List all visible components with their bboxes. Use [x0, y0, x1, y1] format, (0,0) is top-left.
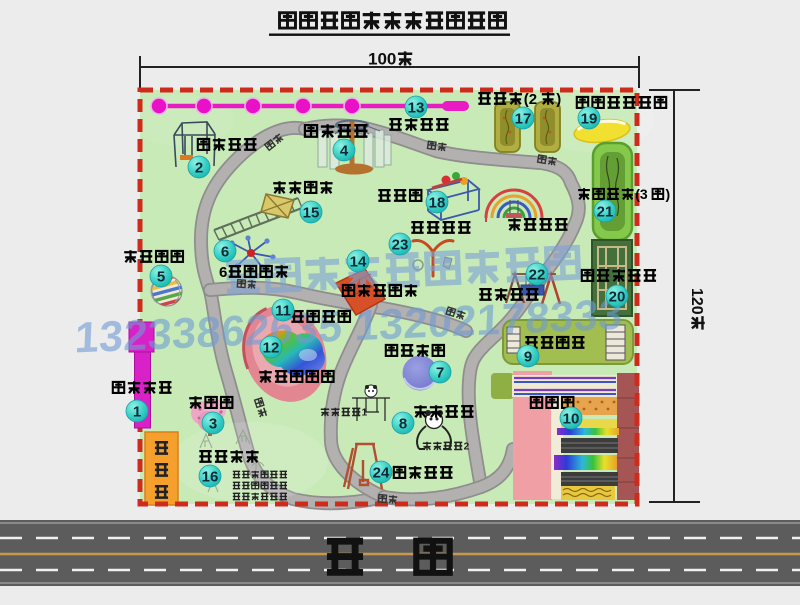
svg-text:7: 7 [436, 364, 444, 381]
svg-text:24: 24 [373, 464, 390, 481]
svg-text:2: 2 [195, 159, 203, 176]
svg-text:3: 3 [209, 415, 217, 432]
svg-text:8: 8 [399, 415, 407, 432]
svg-text:): ) [556, 91, 561, 108]
svg-text:14: 14 [350, 253, 367, 270]
svg-text:6: 6 [221, 243, 229, 260]
svg-text:15: 15 [303, 204, 320, 221]
svg-text:22: 22 [529, 266, 546, 283]
svg-text:): ) [666, 186, 671, 202]
svg-text:(3: (3 [635, 186, 648, 202]
svg-text:10: 10 [563, 410, 580, 427]
svg-text:13: 13 [408, 99, 425, 116]
svg-text:1: 1 [362, 408, 368, 419]
svg-text:18: 18 [429, 194, 446, 211]
svg-text:12: 12 [263, 339, 280, 356]
svg-text:16: 16 [202, 468, 219, 485]
svg-text:9: 9 [524, 348, 532, 365]
svg-text:21: 21 [597, 203, 614, 220]
svg-text:5: 5 [157, 268, 165, 285]
svg-text:19: 19 [581, 110, 598, 127]
svg-text:120: 120 [688, 288, 705, 315]
svg-text:20: 20 [609, 288, 626, 305]
svg-text:17: 17 [515, 110, 532, 127]
svg-text:11: 11 [275, 302, 291, 319]
svg-text:(2: (2 [524, 91, 537, 108]
svg-text:2: 2 [464, 442, 470, 453]
svg-text:23: 23 [392, 236, 409, 253]
svg-text:4: 4 [340, 142, 349, 159]
svg-text:6: 6 [219, 264, 227, 281]
svg-text:100: 100 [368, 50, 396, 69]
svg-text:1: 1 [133, 403, 141, 420]
